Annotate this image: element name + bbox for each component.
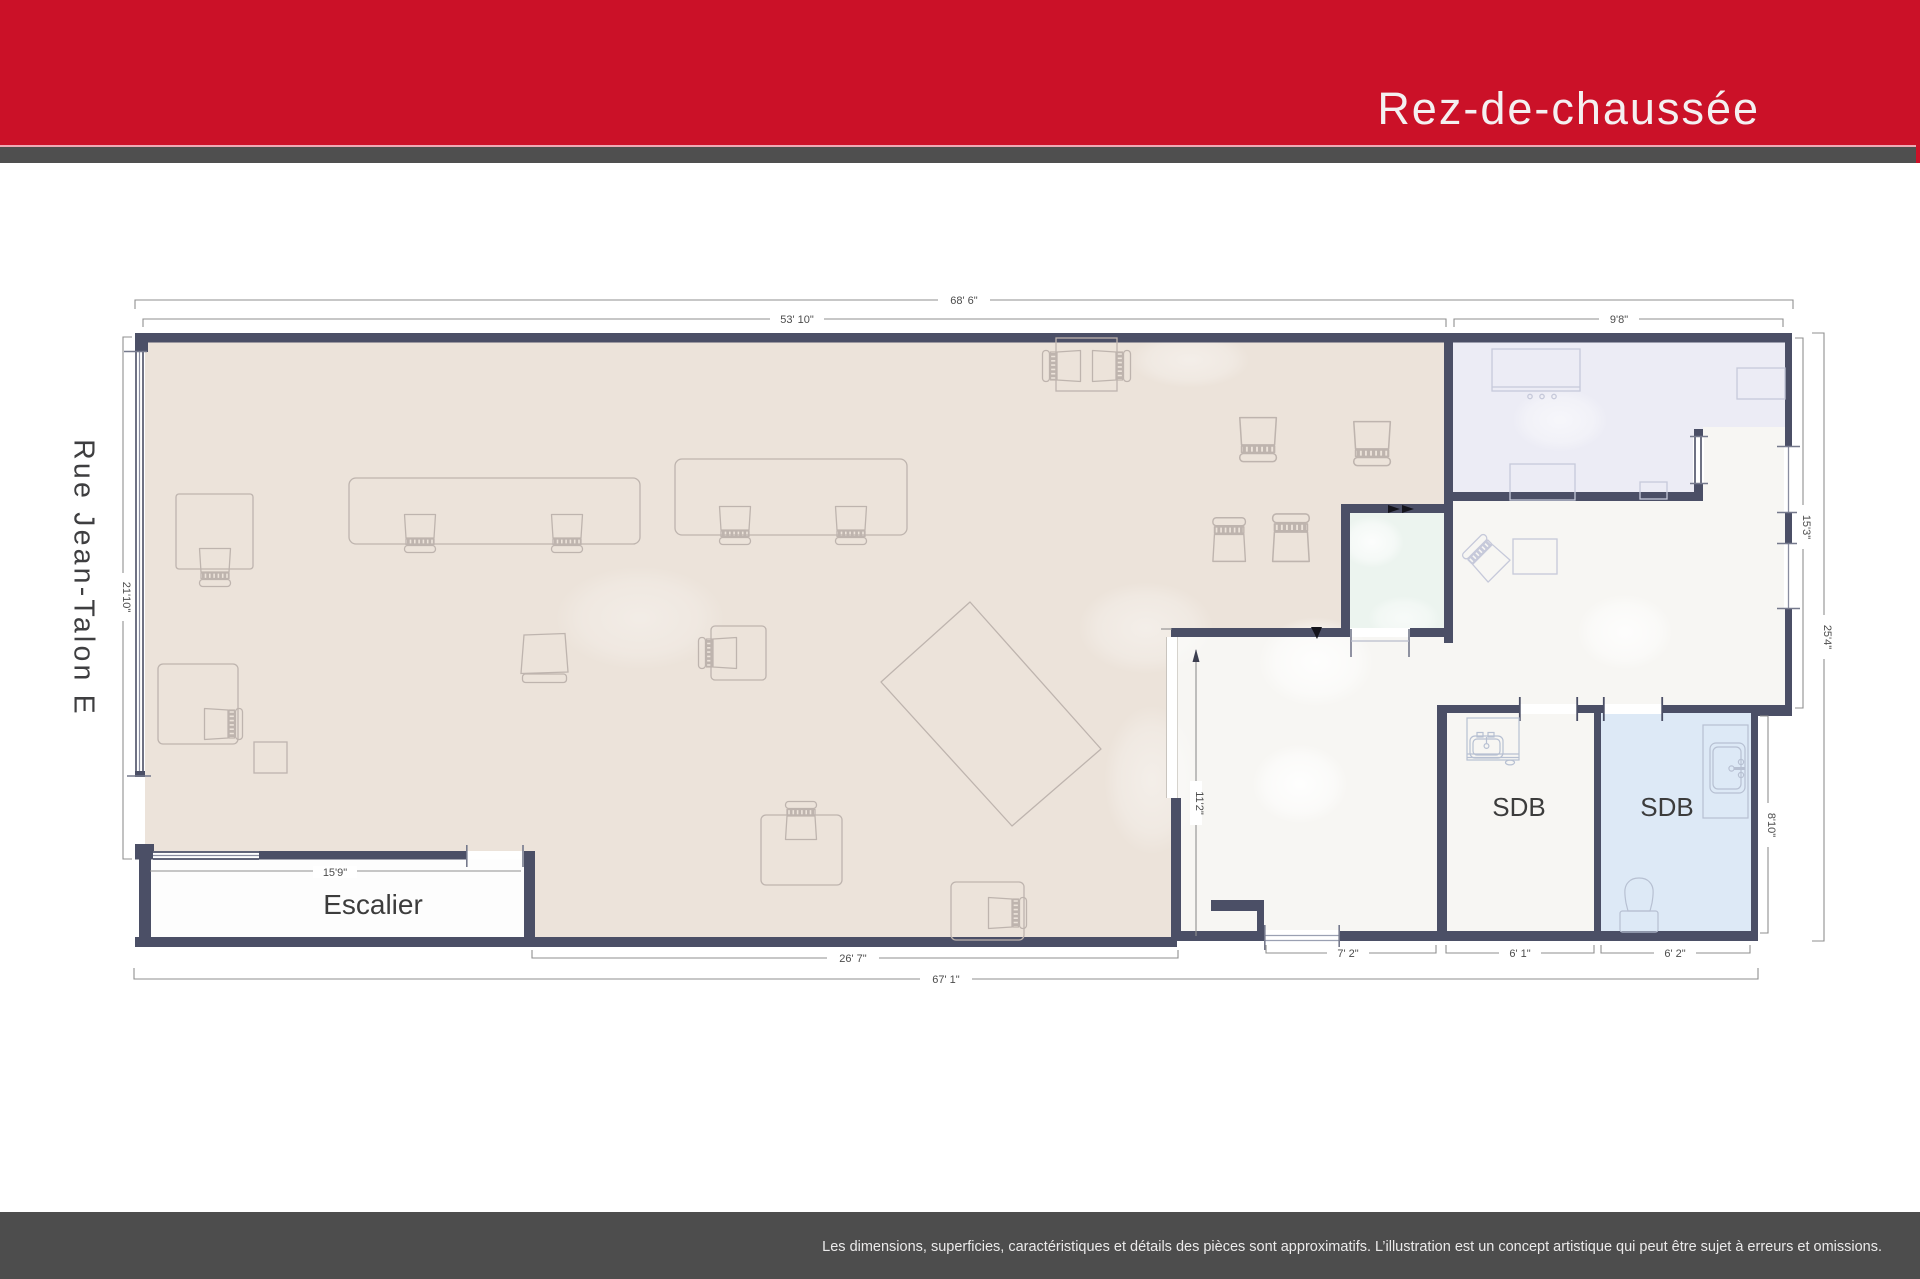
svg-text:6' 2": 6' 2": [1664, 948, 1685, 960]
svg-text:SDB: SDB: [1492, 792, 1545, 822]
svg-text:Escalier: Escalier: [323, 889, 423, 920]
svg-text:26' 7": 26' 7": [839, 953, 867, 965]
svg-text:67' 1": 67' 1": [932, 974, 960, 986]
svg-text:15'9": 15'9": [323, 867, 347, 879]
svg-text:11'2": 11'2": [1193, 791, 1205, 815]
svg-text:SDB: SDB: [1640, 792, 1693, 822]
svg-text:7' 2": 7' 2": [1337, 948, 1358, 960]
svg-text:Rue Jean-Talon E: Rue Jean-Talon E: [67, 439, 99, 717]
svg-text:8'10": 8'10": [1765, 813, 1777, 837]
svg-text:25'4": 25'4": [1821, 625, 1833, 649]
svg-text:15'3": 15'3": [1800, 515, 1812, 539]
svg-text:68' 6": 68' 6": [950, 295, 978, 307]
svg-text:9'8": 9'8": [1610, 314, 1628, 326]
svg-text:6' 1": 6' 1": [1509, 948, 1530, 960]
svg-text:21'10": 21'10": [120, 582, 132, 613]
svg-text:53' 10": 53' 10": [780, 314, 814, 326]
